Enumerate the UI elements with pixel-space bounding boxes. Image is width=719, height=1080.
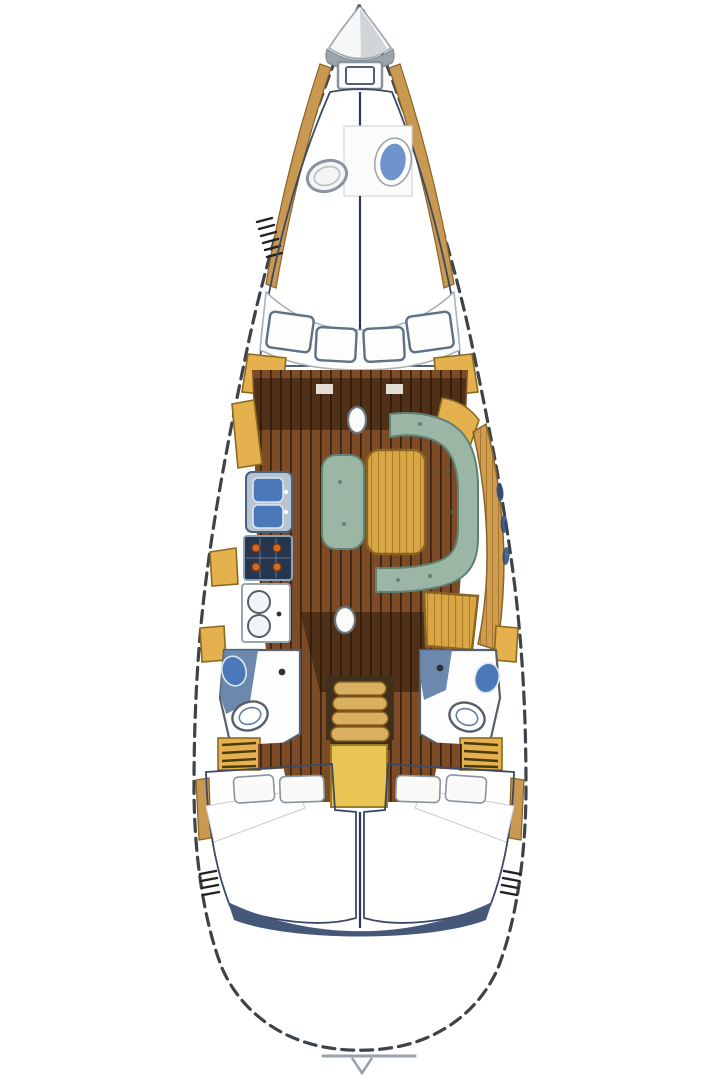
companionway-step-4	[331, 727, 389, 741]
aft-steps-port	[218, 738, 260, 770]
seat-cushion-1	[266, 311, 315, 353]
galley-faucet-2	[284, 510, 288, 514]
stove-burner-3	[252, 563, 260, 571]
aft-steps-starboard	[460, 738, 502, 770]
floor-ring	[335, 607, 355, 633]
seat-cushion-2	[315, 327, 357, 362]
pillow-starboard-2	[445, 775, 487, 804]
pillow-port-2	[280, 775, 325, 803]
mast-post	[348, 407, 366, 433]
bow-cone-shade	[360, 9, 388, 58]
yacht-deck-plan: Bow with anchor locker and foredeck hatc…	[0, 0, 719, 1080]
salon-table	[367, 450, 425, 554]
counter-round-basin-1	[248, 591, 270, 613]
stove-burner-1	[252, 544, 260, 552]
stove-burner-2	[273, 544, 281, 552]
galley-faucet-1	[284, 490, 288, 494]
cabin-door-gap-starboard	[386, 384, 403, 394]
galley-locker-lower	[210, 548, 238, 586]
stern: Stern transom with swim notch	[323, 1056, 415, 1073]
head-port-knob	[279, 669, 286, 676]
counter-round-basin-2	[248, 615, 270, 637]
stove-burner-4	[273, 563, 281, 571]
galley-sink-basin-fwd	[253, 478, 283, 502]
companionway-step-1	[334, 682, 386, 695]
boat-plan-figure: Bow with anchor locker and foredeck hatc…	[0, 0, 719, 1080]
galley-sink-basin-aft	[253, 505, 283, 528]
head-locker-port	[200, 626, 226, 662]
nav-station: Starboard navigation desk	[424, 592, 478, 650]
head-starboard-knob	[437, 665, 444, 672]
pillow-port-1	[233, 775, 275, 804]
cabin-door-gap-port	[316, 384, 333, 394]
counter-knob	[277, 612, 282, 617]
seat-cushion-3	[363, 327, 405, 362]
seat-cushion-4	[406, 311, 455, 353]
engine-box	[331, 745, 387, 807]
pillow-starboard-1	[396, 775, 441, 803]
nav-desk	[424, 592, 478, 650]
stern-notch	[352, 1058, 372, 1073]
companionway-step-3	[332, 712, 388, 725]
companionway-step-2	[333, 697, 387, 710]
companionway: Companionway steps over engine compartme…	[326, 676, 394, 807]
salon-center-bench	[322, 455, 364, 549]
